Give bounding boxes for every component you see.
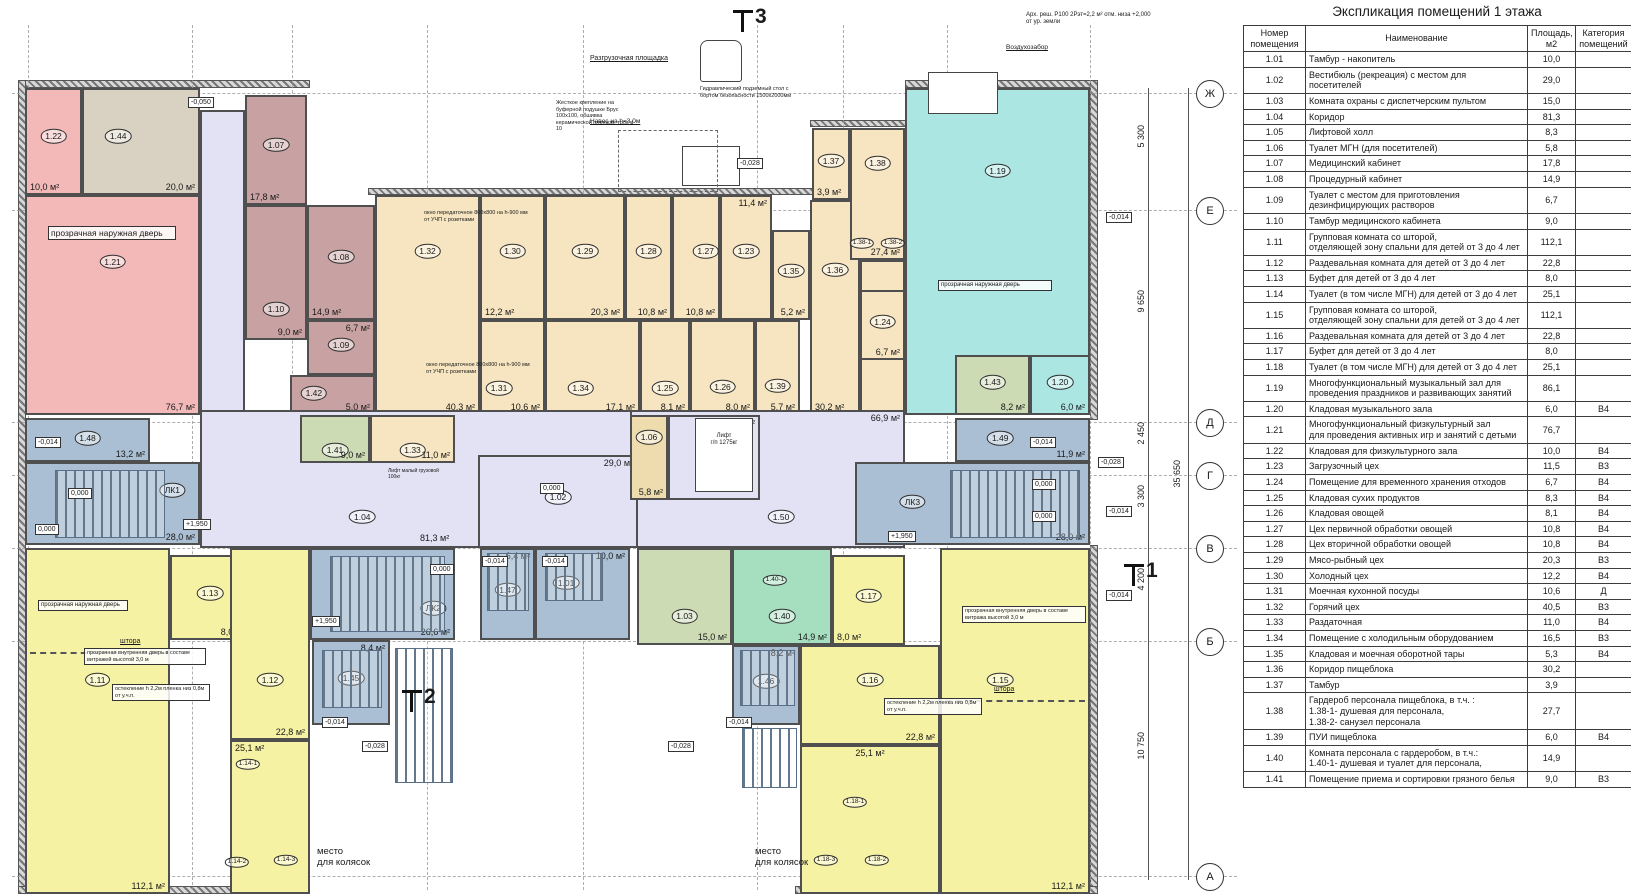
- room-area-label: 6,0 м²: [1061, 403, 1085, 412]
- grid-line-vertical: [1090, 25, 1091, 890]
- room-number-bubble: 1.34: [567, 381, 594, 396]
- room-number-bubble: 1.37: [818, 153, 845, 168]
- schedule-cell-ar: 11,0: [1528, 615, 1576, 631]
- schedule-row-1.07: 1.07Медицинский кабинет17,8: [1244, 156, 1631, 172]
- schedule-cell-ar: 8,3: [1528, 490, 1576, 506]
- schedule-cell-num: 1.22: [1244, 443, 1306, 459]
- room-area-label: 28,0 м²: [166, 533, 195, 542]
- annotation-note: прозрачная внутренняя дверь в составе ви…: [84, 648, 206, 665]
- room-number-bubble: 1.12: [257, 672, 284, 687]
- schedule-cell-name: Многофункциональный физкультурный зал дл…: [1306, 417, 1528, 443]
- section-marker-line: [741, 10, 744, 32]
- wall-hatch: [18, 80, 310, 88]
- room-area-label: 112,1 м²: [1051, 882, 1085, 891]
- schedule-cell-num: 1.19: [1244, 375, 1306, 401]
- schedule-cell-num: 1.28: [1244, 537, 1306, 553]
- equipment-box: [928, 72, 998, 114]
- section-marker-line: [410, 690, 413, 712]
- schedule-cell-cat: В4: [1576, 474, 1631, 490]
- room-number-bubble: 1.27: [692, 244, 719, 259]
- schedule-row-1.41: 1.41Помещение приема и сортировки грязно…: [1244, 772, 1631, 788]
- schedule-cell-cat: В4: [1576, 615, 1631, 631]
- room-number-bubble: 1.11: [85, 673, 111, 688]
- schedule-cell-num: 1.32: [1244, 599, 1306, 615]
- axis-bubble-Б: Б: [1196, 628, 1224, 656]
- schedule-cell-cat: В4: [1576, 490, 1631, 506]
- schedule-cell-name: Гардероб персонала пищеблока, в т.ч. : 1…: [1306, 693, 1528, 730]
- schedule-cell-cat: [1576, 229, 1631, 255]
- room-number-bubble: 1.29: [572, 244, 599, 259]
- schedule-cell-num: 1.09: [1244, 187, 1306, 213]
- schedule-cell-num: 1.06: [1244, 140, 1306, 156]
- schedule-cell-num: 1.10: [1244, 213, 1306, 229]
- schedule-row-1.31: 1.31Моечная кухонной посуды10,6Д: [1244, 584, 1631, 600]
- schedule-cell-ar: 112,1: [1528, 302, 1576, 328]
- room-number-bubble: 1.48: [74, 431, 101, 446]
- schedule-cell-ar: 10,0: [1528, 52, 1576, 68]
- room-number-bubble: 1.26: [709, 379, 736, 394]
- room-1.12: 1.1222,8 м²: [230, 548, 310, 740]
- schedule-cell-num: 1.23: [1244, 459, 1306, 475]
- dimension-label: 10 750: [1136, 732, 1146, 760]
- schedule-cell-num: 1.36: [1244, 662, 1306, 678]
- room-area-label: 14,9 м²: [312, 308, 341, 317]
- overall-dimension-label: 35 650: [1172, 460, 1182, 488]
- schedule-row-1.03: 1.03Комната охраны с диспетчерским пульт…: [1244, 94, 1631, 110]
- schedule-cell-ar: 22,8: [1528, 255, 1576, 271]
- schedule-cell-num: 1.31: [1244, 584, 1306, 600]
- truck-icon: [700, 40, 742, 82]
- elevation-mark: 0,000: [68, 488, 92, 499]
- room-number-bubble: 1.08: [328, 250, 355, 265]
- room-number-bubble: 1.42: [301, 386, 328, 401]
- stairs-icon: [950, 470, 1080, 538]
- schedule-cell-ar: 22,8: [1528, 328, 1576, 344]
- room-1.23: 1.2311,4 м²: [720, 195, 772, 320]
- schedule-cell-name: Туалет с местом для приготовления дезинф…: [1306, 187, 1528, 213]
- schedule-cell-cat: [1576, 187, 1631, 213]
- schedule-cell-cat: [1576, 125, 1631, 141]
- schedule-header: Номер помещенияНаименованиеПлощадь, м2Ка…: [1244, 26, 1631, 52]
- schedule-cell-name: ПУИ пищеблока: [1306, 730, 1528, 746]
- dimension-line: [1188, 88, 1189, 880]
- schedule-cell-cat: В3: [1576, 772, 1631, 788]
- schedule-cell-name: Групповая комната со шторой, отделяющей …: [1306, 302, 1528, 328]
- schedule-cell-cat: В4: [1576, 521, 1631, 537]
- elevation-mark: -0,050: [188, 97, 214, 108]
- stairs-icon: [330, 556, 445, 632]
- annotation-note: Гидравлический подземный стол с бортом б…: [700, 86, 800, 99]
- schedule-cell-name: Буфет для детей от 3 до 4 лет: [1306, 271, 1528, 287]
- room-number-bubble: 1.17: [855, 588, 882, 603]
- elevation-mark: -0,028: [668, 741, 694, 752]
- schedule-cell-cat: В4: [1576, 443, 1631, 459]
- stairs-icon: [55, 470, 165, 538]
- room-area-label: 11,9 м²: [1056, 450, 1085, 459]
- room-area-label: 3,9 м²: [817, 188, 841, 197]
- schedule-cell-ar: 112,1: [1528, 229, 1576, 255]
- room-number-bubble: 1.19: [984, 164, 1011, 179]
- schedule-cell-ar: 10,0: [1528, 443, 1576, 459]
- room-1.32: 1.3240,3 м²: [375, 195, 480, 415]
- schedule-cell-num: 1.15: [1244, 302, 1306, 328]
- schedule-cell-num: 1.18: [1244, 360, 1306, 376]
- room-area-label: 9,0 м²: [278, 328, 302, 337]
- section-marker-2: 2: [424, 686, 458, 720]
- schedule-row-1.18: 1.18Туалет (в том числе МГН) для детей о…: [1244, 360, 1631, 376]
- schedule-cell-name: Моечная кухонной посуды: [1306, 584, 1528, 600]
- room-area-label: 10,8 м²: [686, 308, 715, 317]
- room-area: 25,1 м²: [800, 745, 940, 894]
- room-area-label: 12,2 м²: [485, 308, 514, 317]
- elevation-mark: -0,014: [322, 717, 348, 728]
- schedule-row-1.32: 1.32Горячий цех40,5В3: [1244, 599, 1631, 615]
- schedule-cell-ar: 10,8: [1528, 521, 1576, 537]
- room-number-bubble: 1.22: [40, 129, 67, 144]
- elevation-mark: -0,014: [542, 556, 568, 567]
- schedule-cell-name: Раздаточная: [1306, 615, 1528, 631]
- elevation-mark: +1,950: [183, 519, 211, 530]
- axis-bubble-Е: Е: [1196, 197, 1224, 225]
- annotation-note: место для колясок: [755, 846, 825, 869]
- schedule-cell-num: 1.29: [1244, 552, 1306, 568]
- annotation-note: штора: [994, 686, 1034, 694]
- schedule-cell-num: 1.14: [1244, 286, 1306, 302]
- schedule-cell-num: 1.33: [1244, 615, 1306, 631]
- schedule-cell-cat: [1576, 52, 1631, 68]
- schedule-cell-ar: 10,6: [1528, 584, 1576, 600]
- room-area-label: 6,7 м²: [346, 324, 370, 333]
- schedule-cell-ar: 17,8: [1528, 156, 1576, 172]
- elevation-mark: -0,014: [482, 556, 508, 567]
- room-area-label: 15,0 м²: [698, 633, 727, 642]
- schedule-cell-name: Коридор: [1306, 109, 1528, 125]
- room-1.08: 1.0814,9 м²: [307, 205, 375, 320]
- schedule-row-1.09: 1.09Туалет с местом для приготовления де…: [1244, 187, 1631, 213]
- elevation-mark: -0,014: [1030, 437, 1056, 448]
- schedule-cell-cat: [1576, 344, 1631, 360]
- room-number-bubble: 1.32: [414, 244, 441, 259]
- section-marker-line: [1124, 564, 1144, 567]
- room-number-bubble: 1.13: [197, 586, 224, 601]
- annotation-note: прозрачная внутренняя дверь в составе ви…: [962, 606, 1086, 623]
- elevation-mark: +1,950: [312, 616, 340, 627]
- schedule-row-1.27: 1.27Цех первичной обработки овощей10,8В4: [1244, 521, 1631, 537]
- schedule-cell-name: Туалет (в том числе МГН) для детей от 3 …: [1306, 360, 1528, 376]
- drawing-sheet: { "title": "Экспликация помещений 1 этаж…: [0, 0, 1631, 894]
- schedule-cell-num: 1.25: [1244, 490, 1306, 506]
- dimension-line: [1148, 88, 1149, 880]
- schedule-cell-cat: [1576, 417, 1631, 443]
- room-1.33: 1.3311,0 м²: [370, 415, 455, 463]
- schedule-table: Номер помещенияНаименованиеПлощадь, м2Ка…: [1243, 25, 1631, 788]
- room-1.37: 1.373,9 м²: [812, 128, 850, 200]
- room-1.41: 1.419,0 м²: [300, 415, 370, 463]
- schedule-cell-cat: [1576, 360, 1631, 376]
- section-marker-3: 3: [755, 6, 789, 40]
- schedule-cell-name: Помещение для временного хранения отходо…: [1306, 474, 1528, 490]
- schedule-row-1.10: 1.10Тамбур медицинского кабинета9,0: [1244, 213, 1631, 229]
- room-number-bubble: 1.50: [768, 509, 795, 524]
- schedule-cell-cat: В4: [1576, 730, 1631, 746]
- schedule-cell-cat: [1576, 662, 1631, 678]
- schedule-cell-num: 1.08: [1244, 172, 1306, 188]
- schedule-cell-cat: В3: [1576, 459, 1631, 475]
- schedule-cell-num: 1.03: [1244, 94, 1306, 110]
- schedule-cell-cat: [1576, 745, 1631, 771]
- wall-hatch: [810, 120, 910, 127]
- schedule-cell-ar: 29,0: [1528, 67, 1576, 93]
- room-area-label: 11,4 м²: [738, 199, 767, 208]
- dimension-label: 4 200: [1136, 568, 1146, 591]
- room-number-bubble: 1.10: [263, 302, 290, 317]
- schedule-cell-num: 1.21: [1244, 417, 1306, 443]
- room-1.10: 1.109,0 м²: [245, 205, 307, 340]
- schedule-cell-ar: 3,9: [1528, 677, 1576, 693]
- schedule-cell-ar: 10,8: [1528, 537, 1576, 553]
- schedule-row-1.11: 1.11Групповая комната со шторой, отделяю…: [1244, 229, 1631, 255]
- schedule-cell-name: Групповая комната со шторой, отделяющей …: [1306, 229, 1528, 255]
- schedule-col-header: Категория помещений: [1576, 26, 1631, 52]
- schedule-cell-ar: 30,2: [1528, 662, 1576, 678]
- sub-room-bubble: 1.38-2: [881, 238, 905, 249]
- schedule-cell-name: Раздевальная комната для детей от 3 до 4…: [1306, 255, 1528, 271]
- room-area: [200, 110, 245, 415]
- sub-room-bubble: 1.38-1: [850, 238, 874, 249]
- room-1.40: 1.4014,9 м²: [732, 548, 832, 645]
- schedule-row-1.20: 1.20Кладовая музыкального зала6,0В4: [1244, 401, 1631, 417]
- elevation-mark: 0,000: [1032, 511, 1056, 522]
- schedule-cell-ar: 12,2: [1528, 568, 1576, 584]
- schedule-cell-cat: [1576, 375, 1631, 401]
- schedule-cell-name: Загрузочный цех: [1306, 459, 1528, 475]
- schedule-cell-name: Тамбур медицинского кабинета: [1306, 213, 1528, 229]
- schedule-cell-name: Туалет МГН (для посетителей): [1306, 140, 1528, 156]
- schedule-cell-cat: [1576, 255, 1631, 271]
- schedule-cell-name: Кладовая сухих продуктов: [1306, 490, 1528, 506]
- schedule-cell-cat: [1576, 677, 1631, 693]
- stairs-icon: [742, 728, 797, 788]
- schedule-cell-cat: [1576, 140, 1631, 156]
- room-area-label: 5,2 м²: [781, 308, 805, 317]
- schedule-row-1.33: 1.33Раздаточная11,0В4: [1244, 615, 1631, 631]
- schedule-row-1.22: 1.22Кладовая для физкультурного зала10,0…: [1244, 443, 1631, 459]
- schedule-cell-num: 1.12: [1244, 255, 1306, 271]
- room-number-bubble: 1.40: [769, 609, 796, 624]
- room-area-label: 66,9 м²: [871, 414, 900, 423]
- annotation-note: прозрачная наружная дверь: [38, 600, 128, 611]
- schedule-cell-name: Кладовая и моечная оборотной тары: [1306, 646, 1528, 662]
- schedule-cell-num: 1.30: [1244, 568, 1306, 584]
- room-number-bubble: 1.30: [499, 244, 526, 259]
- schedule-cell-num: 1.20: [1244, 401, 1306, 417]
- schedule-cell-num: 1.34: [1244, 630, 1306, 646]
- schedule-cell-num: 1.02: [1244, 67, 1306, 93]
- room-number-bubble: 1.28: [635, 244, 662, 259]
- room-1.03: 1.0315,0 м²: [637, 548, 732, 645]
- schedule-row-1.38: 1.38Гардероб персонала пищеблока, в т.ч.…: [1244, 693, 1631, 730]
- elevation-mark: -0,014: [1106, 506, 1132, 517]
- schedule-cell-name: Мясо-рыбный цех: [1306, 552, 1528, 568]
- schedule-cell-name: Туалет (в том числе МГН) для детей от 3 …: [1306, 286, 1528, 302]
- schedule-row-1.40: 1.40Комната персонала с гардеробом, в т.…: [1244, 745, 1631, 771]
- room-number-bubble: 1.35: [778, 263, 805, 278]
- schedule-row-1.35: 1.35Кладовая и моечная оборотной тары5,3…: [1244, 646, 1631, 662]
- elevator-shaft: Лифт г/п 1275кг: [695, 418, 753, 492]
- room-number-bubble: 1.43: [979, 375, 1006, 390]
- schedule-cell-ar: 11,5: [1528, 459, 1576, 475]
- dimension-label: 5 300: [1136, 125, 1146, 148]
- schedule-cell-name: Многофункциональный музыкальный зал для …: [1306, 375, 1528, 401]
- schedule-cell-ar: 15,0: [1528, 94, 1576, 110]
- schedule-row-1.01: 1.01Тамбур - накопитель10,0: [1244, 52, 1631, 68]
- schedule-cell-cat: [1576, 271, 1631, 287]
- schedule-cell-cat: В3: [1576, 552, 1631, 568]
- section-marker-1: 1: [1146, 560, 1180, 594]
- schedule-col-header: Номер помещения: [1244, 26, 1306, 52]
- annotation-note: окно передаточное 800х800 на h-900 мм от…: [424, 210, 532, 223]
- schedule-cell-num: 1.26: [1244, 506, 1306, 522]
- room-number-bubble: 1.07: [263, 137, 290, 152]
- schedule-cell-name: Лифтовой холл: [1306, 125, 1528, 141]
- sub-room-bubble: 1.14-2: [225, 857, 249, 868]
- room-1.42: 1.425,0 м²: [290, 375, 375, 415]
- schedule-row-1.30: 1.30Холодный цех12,2В4: [1244, 568, 1631, 584]
- room-area-label: 14,9 м²: [798, 633, 827, 642]
- schedule-cell-name: Комната охраны с диспетчерским пультом: [1306, 94, 1528, 110]
- schedule-cell-cat: [1576, 302, 1631, 328]
- annotation-note: Лифт малый грузовой 100кг: [388, 468, 448, 480]
- annotation-note: прозрачная наружная дверь: [48, 226, 176, 240]
- section-marker-line: [733, 10, 753, 13]
- schedule-row-1.06: 1.06Туалет МГН (для посетителей)5,8: [1244, 140, 1631, 156]
- schedule-cell-name: Цех вторичной обработки овощей: [1306, 537, 1528, 553]
- schedule-cell-ar: 5,8: [1528, 140, 1576, 156]
- room-number-bubble: 1.44: [105, 129, 132, 144]
- schedule-cell-cat: В4: [1576, 401, 1631, 417]
- schedule-cell-name: Холодный цех: [1306, 568, 1528, 584]
- schedule-cell-name: Цех первичной обработки овощей: [1306, 521, 1528, 537]
- schedule-cell-num: 1.37: [1244, 677, 1306, 693]
- room-area-label: 81,3 м²: [420, 534, 449, 543]
- schedule-cell-ar: 25,1: [1528, 286, 1576, 302]
- schedule-row-1.28: 1.28Цех вторичной обработки овощей10,8В4: [1244, 537, 1631, 553]
- room-number-bubble: 1.24: [869, 314, 896, 329]
- room-number-bubble: 1.04: [349, 509, 376, 524]
- schedule-cell-ar: 9,0: [1528, 772, 1576, 788]
- schedule-cell-ar: 14,9: [1528, 745, 1576, 771]
- axis-bubble-Д: Д: [1196, 409, 1224, 437]
- room-number-bubble: 1.38: [864, 156, 891, 171]
- room-area-label: 25,1 м²: [855, 749, 884, 758]
- room-area-label: 112,1 м²: [131, 882, 165, 891]
- schedule-cell-ar: 16,5: [1528, 630, 1576, 646]
- room-area-label: 76,7 м²: [166, 403, 195, 412]
- schedule-cell-cat: В4: [1576, 537, 1631, 553]
- elevation-mark: -0,028: [362, 741, 388, 752]
- stairs-icon: [322, 650, 382, 708]
- schedule-cell-name: Тамбур: [1306, 677, 1528, 693]
- schedule-cell-ar: 5,3: [1528, 646, 1576, 662]
- elevation-mark: -0,028: [1098, 457, 1124, 468]
- schedule-cell-ar: 27,7: [1528, 693, 1576, 730]
- room-area-label: 27,4 м²: [871, 248, 900, 257]
- room-1.35: 1.355,2 м²: [772, 230, 810, 320]
- schedule-title: Экспликация помещений 1 этажа: [1243, 4, 1631, 19]
- schedule-row-1.36: 1.36Коридор пищеблока30,2: [1244, 662, 1631, 678]
- annotation-note: Арх. реш. Р100 2Рэт=2,2 м² отм. низа +2,…: [1026, 12, 1151, 26]
- room-area-label: 10,0 м²: [30, 183, 59, 192]
- schedule-cell-ar: 25,1: [1528, 360, 1576, 376]
- schedule-cell-name: Процедурный кабинет: [1306, 172, 1528, 188]
- room-1.28: 1.2810,8 м²: [625, 195, 672, 320]
- room-number-bubble: 1.23: [733, 244, 760, 259]
- elevation-mark: -0,014: [726, 717, 752, 728]
- schedule-row-1.04: 1.04Коридор81,3: [1244, 109, 1631, 125]
- annotation-note: штора: [120, 638, 160, 646]
- schedule-cell-num: 1.17: [1244, 344, 1306, 360]
- room-area-label: 17,8 м²: [250, 193, 279, 202]
- schedule-row-1.14: 1.14Туалет (в том числе МГН) для детей о…: [1244, 286, 1631, 302]
- axis-bubble-А: А: [1196, 863, 1224, 891]
- schedule-cell-num: 1.07: [1244, 156, 1306, 172]
- schedule-row-1.16: 1.16Раздевальная комната для детей от 3 …: [1244, 328, 1631, 344]
- schedule-cell-name: Буфет для детей от 3 до 4 лет: [1306, 344, 1528, 360]
- room-1.06: 1.065,8 м²: [630, 415, 668, 500]
- room-number-bubble: 1.25: [652, 381, 679, 396]
- room-1.02: 1.0229,0 м²: [478, 455, 638, 548]
- sub-room-bubble: 1.14-1: [236, 759, 260, 770]
- schedule-cell-cat: Д: [1576, 584, 1631, 600]
- schedule-cell-ar: 40,5: [1528, 599, 1576, 615]
- room-1.27: 1.2710,8 м²: [672, 195, 720, 320]
- schedule-cell-ar: 8,1: [1528, 506, 1576, 522]
- room-area-label: 5,8 м²: [639, 488, 663, 497]
- schedule-cell-cat: [1576, 693, 1631, 730]
- annotation-note: остекление h 2,2м пленка низ 0,8м от у.ч…: [112, 684, 210, 701]
- wall-hatch: [1090, 80, 1098, 420]
- room-area-label: 9,0 м²: [341, 451, 365, 460]
- schedule-cell-cat: [1576, 328, 1631, 344]
- schedule-row-1.26: 1.26Кладовая овощей8,1В4: [1244, 506, 1631, 522]
- section-marker-line: [1132, 564, 1135, 586]
- room-1.43: 1.438,2 м²: [955, 355, 1030, 415]
- schedule-cell-ar: 6,7: [1528, 474, 1576, 490]
- schedule-body: 1.01Тамбур - накопитель10,01.02Вестибюль…: [1244, 52, 1631, 787]
- room-1.17: 1.178,0 м²: [832, 555, 905, 645]
- schedule-row-1.05: 1.05Лифтовой холл8,3: [1244, 125, 1631, 141]
- schedule-row-1.13: 1.13Буфет для детей от 3 до 4 лет8,0: [1244, 271, 1631, 287]
- elevation-mark: -0,014: [35, 437, 61, 448]
- schedule-cell-cat: [1576, 172, 1631, 188]
- annotation-note: остекление h 2,2м пленка низ 0,8м от у.ч…: [884, 698, 982, 715]
- schedule-cell-num: 1.04: [1244, 109, 1306, 125]
- schedule-cell-name: Кладовая овощей: [1306, 506, 1528, 522]
- dimension-label: 9 650: [1136, 290, 1146, 313]
- schedule-cell-ar: 8,0: [1528, 271, 1576, 287]
- schedule-cell-num: 1.01: [1244, 52, 1306, 68]
- schedule-cell-cat: [1576, 94, 1631, 110]
- schedule-cell-ar: 8,3: [1528, 125, 1576, 141]
- room-area-label: 11,0 м²: [421, 451, 450, 460]
- room-1.22: 1.2210,0 м²: [25, 88, 82, 195]
- room-number-bubble: ЛК3: [900, 495, 925, 510]
- schedule-cell-cat: [1576, 286, 1631, 302]
- schedule-cell-num: 1.05: [1244, 125, 1306, 141]
- room-area-label: 25,1 м²: [235, 744, 264, 753]
- annotation-note: Разгрузочная площадка: [590, 55, 702, 63]
- room-number-bubble: 1.06: [636, 430, 663, 445]
